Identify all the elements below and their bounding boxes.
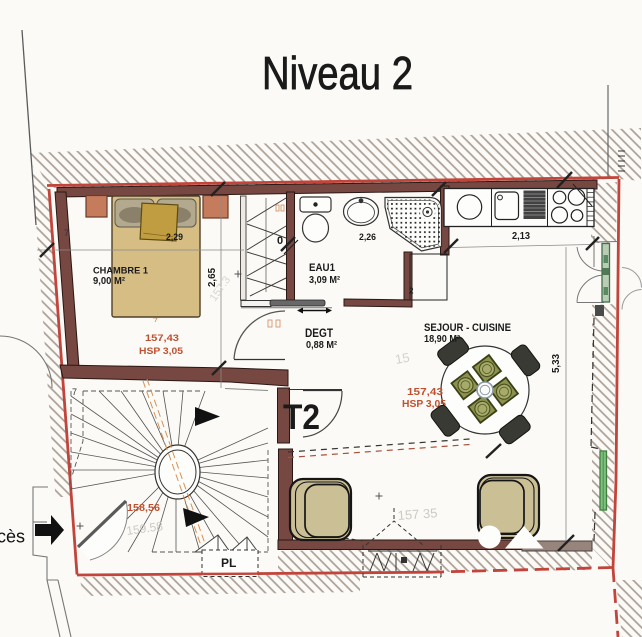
svg-text:2: 2 [409, 287, 414, 296]
svg-text:0: 0 [277, 235, 283, 247]
svg-text:cès: cès [0, 527, 25, 547]
svg-text:HSP 3,05: HSP 3,05 [139, 346, 184, 357]
svg-text:T2: T2 [283, 398, 320, 437]
svg-text:9,00 M²: 9,00 M² [93, 276, 126, 287]
svg-text:DEGT: DEGT [305, 326, 334, 340]
svg-text:18,90 M²: 18,90 M² [424, 333, 460, 345]
svg-text:2,29: 2,29 [166, 232, 183, 243]
svg-text:158,56: 158,56 [127, 503, 160, 514]
svg-text:Niveau 2: Niveau 2 [262, 47, 413, 99]
svg-text:157,43: 157,43 [407, 387, 444, 398]
svg-text:2,13: 2,13 [512, 231, 530, 242]
svg-text:7: 7 [72, 387, 77, 397]
svg-text:7: 7 [64, 228, 69, 238]
svg-text:3,09 M²: 3,09 M² [309, 275, 341, 286]
svg-text:0,88 M²: 0,88 M² [306, 340, 338, 351]
svg-text:2,65: 2,65 [207, 268, 218, 287]
svg-text:EAU1: EAU1 [309, 262, 335, 274]
svg-text:157,43: 157,43 [145, 333, 179, 344]
svg-text:2,26: 2,26 [359, 232, 376, 243]
svg-text:PL: PL [221, 556, 236, 570]
svg-text:15: 15 [394, 350, 411, 367]
svg-text:CHAMBRE 1: CHAMBRE 1 [93, 266, 149, 277]
svg-text:5,33: 5,33 [551, 354, 562, 373]
svg-text:157 35: 157 35 [397, 505, 438, 523]
